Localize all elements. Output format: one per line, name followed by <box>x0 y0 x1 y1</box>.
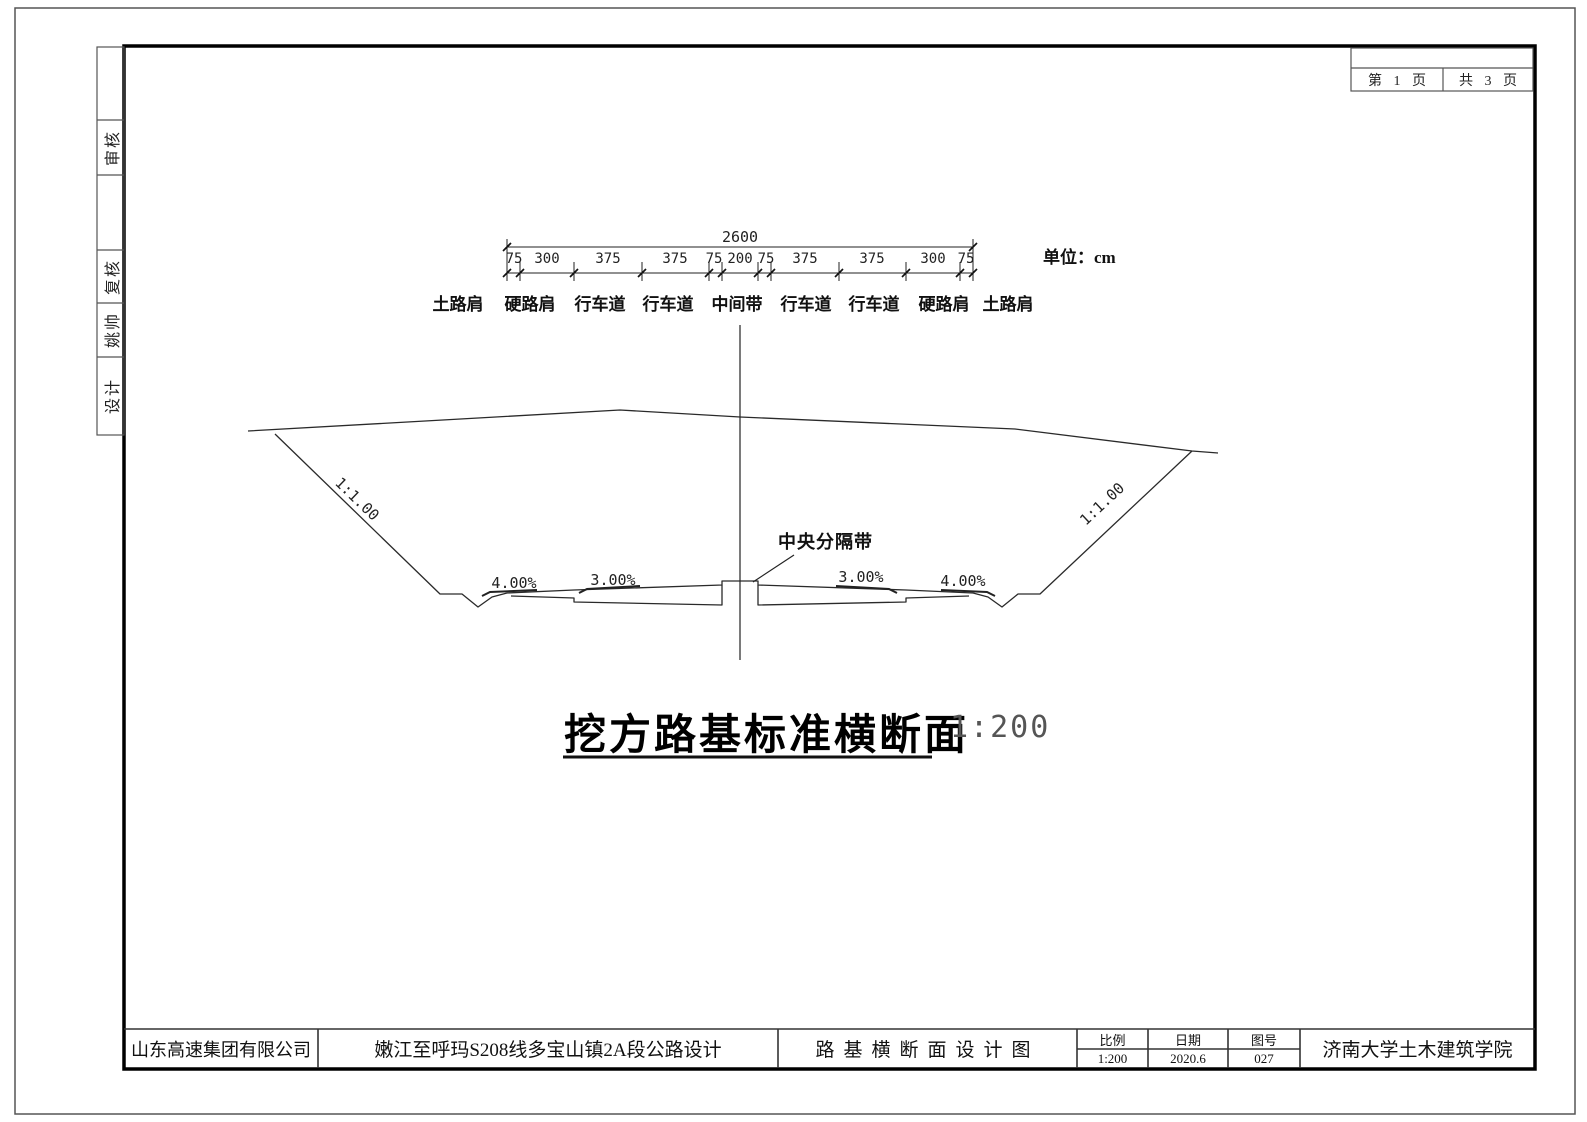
crossfall-right-outer: 4.00% <box>940 572 985 590</box>
dim-seg: 75 <box>706 251 723 267</box>
ground-line <box>248 410 1218 453</box>
dim-seg: 300 <box>920 251 945 267</box>
strip-cell-blank-2 <box>97 175 124 250</box>
drawing-main-scale: 1:200 <box>950 710 1050 745</box>
right-slope-ditch <box>973 451 1192 607</box>
dim-seg: 200 <box>727 251 752 267</box>
page-total: 共 3 页 <box>1443 69 1533 91</box>
strip-label-reviewer: 审核 <box>99 129 123 165</box>
tb-drawing-title: 路基横断面设计图 <box>778 1029 1077 1068</box>
drawing-sheet: 审核 复核 姚帅 设计 第 1 页 共 3 页 2600 单位：cm 75 30… <box>0 0 1587 1122</box>
tb-date-label: 日期 <box>1148 1029 1228 1049</box>
tb-project: 嫩江至呼玛S208线多宝山镇2A段公路设计 <box>318 1029 778 1068</box>
seg-label: 行车道 <box>781 290 832 315</box>
seg-label: 土路肩 <box>983 290 1034 315</box>
crossfall-right-inner: 3.00% <box>838 568 883 586</box>
page-current: 第 1 页 <box>1351 69 1443 91</box>
dim-total: 2600 <box>722 228 758 246</box>
dim-seg: 375 <box>662 251 687 267</box>
dim-seg: 75 <box>506 251 523 267</box>
seg-label: 硬路肩 <box>919 290 970 315</box>
tb-number-value: 027 <box>1228 1049 1300 1068</box>
tb-scale-value: 1:200 <box>1077 1049 1148 1068</box>
inner-frame <box>124 46 1535 1069</box>
strip-label-checker: 复核 <box>99 258 123 294</box>
median-leader-line <box>753 555 794 582</box>
strip-label-designer-name: 姚帅 <box>99 312 123 348</box>
strip-cell-designer-name: 姚帅 <box>97 303 124 357</box>
crossfall-left-inner: 3.00% <box>590 571 635 589</box>
strip-cell-blank-1 <box>97 47 124 120</box>
dim-seg: 375 <box>792 251 817 267</box>
seg-label: 土路肩 <box>433 290 484 315</box>
seg-label: 行车道 <box>575 290 626 315</box>
drawing-main-title: 挖方路基标准横断面 <box>564 701 969 762</box>
unit-note: 单位：cm <box>1043 243 1116 268</box>
median-label: 中央分隔带 <box>778 528 873 554</box>
seg-label: 中间带 <box>712 290 763 315</box>
drawing-linework <box>0 0 1587 1122</box>
cross-section-lines <box>248 410 1218 607</box>
tb-scale-label: 比例 <box>1077 1029 1148 1049</box>
crossfall-left-outer: 4.00% <box>491 574 536 592</box>
dim-seg: 375 <box>595 251 620 267</box>
strip-cell-checker: 复核 <box>97 250 124 303</box>
tb-institute: 济南大学土木建筑学院 <box>1300 1029 1535 1068</box>
seg-label: 硬路肩 <box>505 290 556 315</box>
strip-label-designer: 设计 <box>99 378 123 414</box>
strip-cell-reviewer: 审核 <box>97 120 124 175</box>
tb-company: 山东高速集团有限公司 <box>124 1029 318 1068</box>
dim-seg: 75 <box>958 251 975 267</box>
strip-cell-designer: 设计 <box>97 357 124 435</box>
seg-label: 行车道 <box>643 290 694 315</box>
tb-number-label: 图号 <box>1228 1029 1300 1049</box>
dim-seg: 375 <box>859 251 884 267</box>
tb-date-value: 2020.6 <box>1148 1049 1228 1068</box>
outer-border <box>15 8 1575 1114</box>
dim-seg: 75 <box>758 251 775 267</box>
left-slope-ditch <box>275 434 507 607</box>
dim-seg: 300 <box>534 251 559 267</box>
seg-label: 行车道 <box>849 290 900 315</box>
